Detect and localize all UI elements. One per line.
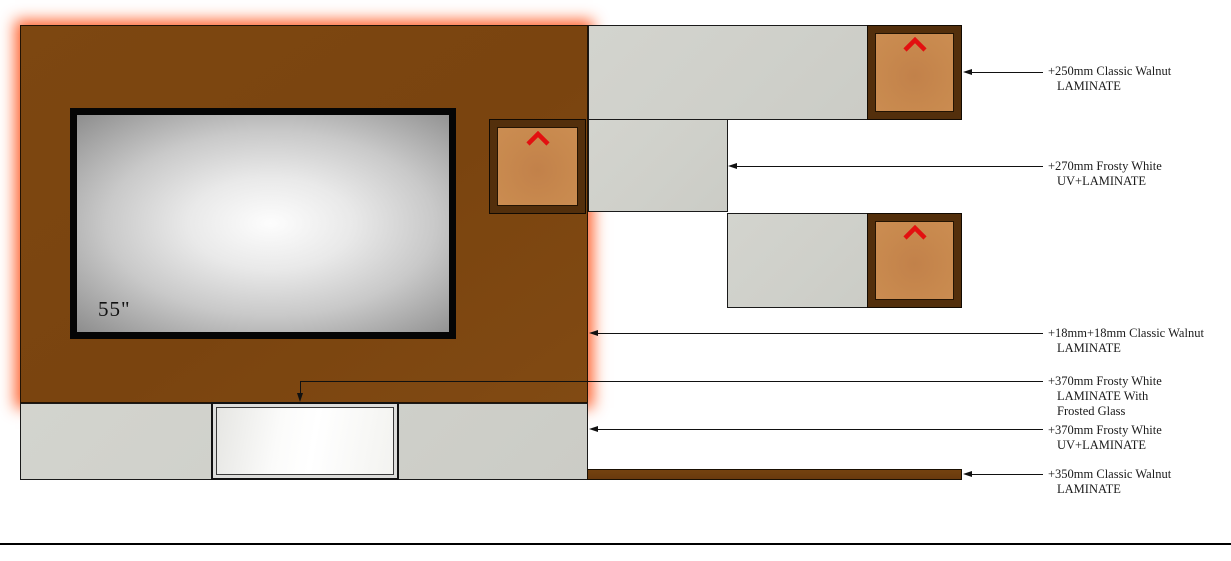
tv-size-label: 55"	[98, 297, 131, 322]
tv-screen: 55"	[77, 115, 449, 332]
cabinet-door-face	[497, 127, 578, 206]
callout-line: +350mm Classic Walnut	[1048, 467, 1171, 482]
callout-line: +370mm Frosty White	[1048, 423, 1162, 438]
walnut-cabinet-middle	[489, 119, 586, 214]
callout-250mm-classic-walnut: +250mm Classic Walnut LAMINATE	[1048, 64, 1171, 94]
frosty-white-panel-middle	[588, 119, 728, 212]
callout-line: +250mm Classic Walnut	[1048, 64, 1171, 79]
leader-line-350mm	[966, 474, 1043, 475]
elevation-drawing-canvas: 55"	[0, 0, 1231, 561]
frosty-white-panel-top	[588, 25, 868, 120]
callout-line: LAMINATE With	[1048, 389, 1162, 404]
cabinet-door-face	[875, 221, 954, 300]
arrowhead-down-icon	[297, 393, 303, 402]
walnut-shelf-strip	[587, 469, 962, 480]
callout-line: +18mm+18mm Classic Walnut	[1048, 326, 1204, 341]
callout-18mm-classic-walnut: +18mm+18mm Classic Walnut LAMINATE	[1048, 326, 1204, 356]
arrowhead-left-icon	[963, 69, 972, 75]
callout-line: LAMINATE	[1048, 482, 1171, 497]
frosty-white-panel-lower	[727, 213, 868, 308]
leader-line-370mm-uv	[592, 429, 1043, 430]
arrowhead-left-icon	[728, 163, 737, 169]
callout-line: UV+LAMINATE	[1048, 174, 1162, 189]
callout-line: Frosted Glass	[1048, 404, 1162, 419]
leader-line-18mm	[592, 333, 1043, 334]
callout-line: LAMINATE	[1048, 79, 1171, 94]
callout-270mm-frosty-white: +270mm Frosty White UV+LAMINATE	[1048, 159, 1162, 189]
walnut-cabinet-top-right	[867, 25, 962, 120]
arrowhead-left-icon	[589, 330, 598, 336]
upward-chevron-icon	[524, 131, 552, 146]
arrowhead-left-icon	[963, 471, 972, 477]
tv-55-inch: 55"	[70, 108, 456, 339]
callout-line: +370mm Frosty White	[1048, 374, 1162, 389]
page-divider-line	[0, 543, 1231, 545]
arrowhead-left-icon	[589, 426, 598, 432]
walnut-cabinet-lower-right	[867, 213, 962, 308]
callout-370mm-frosted-glass: +370mm Frosty White LAMINATE With Froste…	[1048, 374, 1162, 419]
leader-line-370mm-glass	[300, 381, 1043, 382]
callout-line: +270mm Frosty White	[1048, 159, 1162, 174]
callout-370mm-uv-laminate: +370mm Frosty White UV+LAMINATE	[1048, 423, 1162, 453]
frosted-glass-pane	[216, 407, 394, 475]
callout-350mm-classic-walnut: +350mm Classic Walnut LAMINATE	[1048, 467, 1171, 497]
walnut-wall-panel: 55"	[20, 25, 588, 403]
callout-line: LAMINATE	[1048, 341, 1204, 356]
upward-chevron-icon	[901, 37, 929, 52]
upward-chevron-icon	[901, 225, 929, 240]
leader-line-250mm	[966, 72, 1043, 73]
cabinet-door-face	[875, 33, 954, 112]
frosted-glass-door	[211, 402, 399, 480]
leader-line-270mm	[731, 166, 1043, 167]
callout-line: UV+LAMINATE	[1048, 438, 1162, 453]
